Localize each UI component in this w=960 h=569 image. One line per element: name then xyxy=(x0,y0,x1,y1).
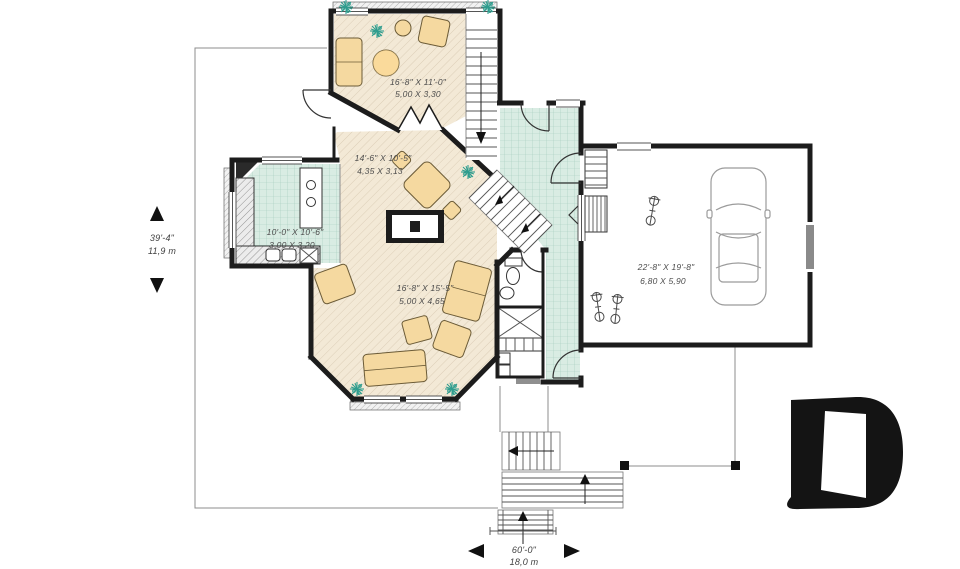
depth-metric: 11,9 m xyxy=(148,246,176,256)
window xyxy=(262,157,302,164)
counter-left xyxy=(236,178,254,248)
kitchen-label-metric: 3,00 X 3,20 xyxy=(269,240,315,250)
window xyxy=(578,195,585,241)
dining-label-imperial: 14'-6" X 10'-5" xyxy=(355,153,412,163)
closet xyxy=(497,307,543,384)
garage-interior xyxy=(569,150,770,324)
sink-basin xyxy=(282,249,296,261)
toilet-bowl xyxy=(507,268,520,285)
depth-imperial: 39'-4" xyxy=(150,233,175,243)
floor-plan-page: 16'-8" X 11'-0" 5,00 X 3,30 14'-6" X 10'… xyxy=(0,0,960,569)
bicycle xyxy=(609,293,624,324)
kitchen-island xyxy=(386,210,444,243)
living-label-metric: 5,00 X 4,65 xyxy=(399,296,445,306)
width-imperial: 60'-0" xyxy=(512,545,537,555)
dining-label-metric: 4,35 X 3,13 xyxy=(357,166,403,176)
burner xyxy=(307,181,316,190)
kitchen-label-imperial: 10'-0" X 10'-6" xyxy=(267,227,324,237)
porch-post xyxy=(620,461,629,470)
dimension-depth: 39'-4" 11,9 m xyxy=(148,206,176,293)
sunroom-label-imperial: 16'-8" X 11'-0" xyxy=(390,77,447,87)
sunroom-label-metric: 5,00 X 3,30 xyxy=(395,89,441,99)
stair-upper xyxy=(466,14,497,160)
bicycle xyxy=(644,195,661,227)
measure-triangle-down-icon xyxy=(150,278,164,293)
garage-shelving xyxy=(585,196,607,232)
car xyxy=(707,168,770,305)
measure-triangle-left-icon xyxy=(468,544,484,558)
bicycle xyxy=(590,291,606,322)
porch-post xyxy=(731,461,740,470)
burner xyxy=(307,198,316,207)
window xyxy=(364,396,400,403)
floor-plan-drawing: 16'-8" X 11'-0" 5,00 X 3,30 14'-6" X 10'… xyxy=(0,0,960,569)
bathroom-sink xyxy=(500,287,514,299)
garage-label-metric: 6,80 X 5,90 xyxy=(640,276,686,286)
window xyxy=(229,192,236,248)
sink-basin xyxy=(266,249,280,261)
window xyxy=(556,100,580,107)
deck-door xyxy=(303,90,331,118)
garage-door xyxy=(806,222,815,272)
dishwasher xyxy=(300,248,318,263)
window xyxy=(406,396,442,403)
living-label-imperial: 16'-8" X 15'-5" xyxy=(397,283,454,293)
stairs-entry-exterior xyxy=(498,432,623,544)
toilet-tank xyxy=(505,258,522,266)
drummond-d-logo-icon xyxy=(787,397,903,509)
window xyxy=(617,143,651,150)
width-metric: 18,0 m xyxy=(510,557,539,567)
foyer-hall-floor xyxy=(500,108,580,382)
garage-label-imperial: 22'-8" X 19'-8" xyxy=(637,262,695,272)
measure-triangle-up-icon xyxy=(150,206,164,221)
measure-triangle-right-icon xyxy=(564,544,580,558)
